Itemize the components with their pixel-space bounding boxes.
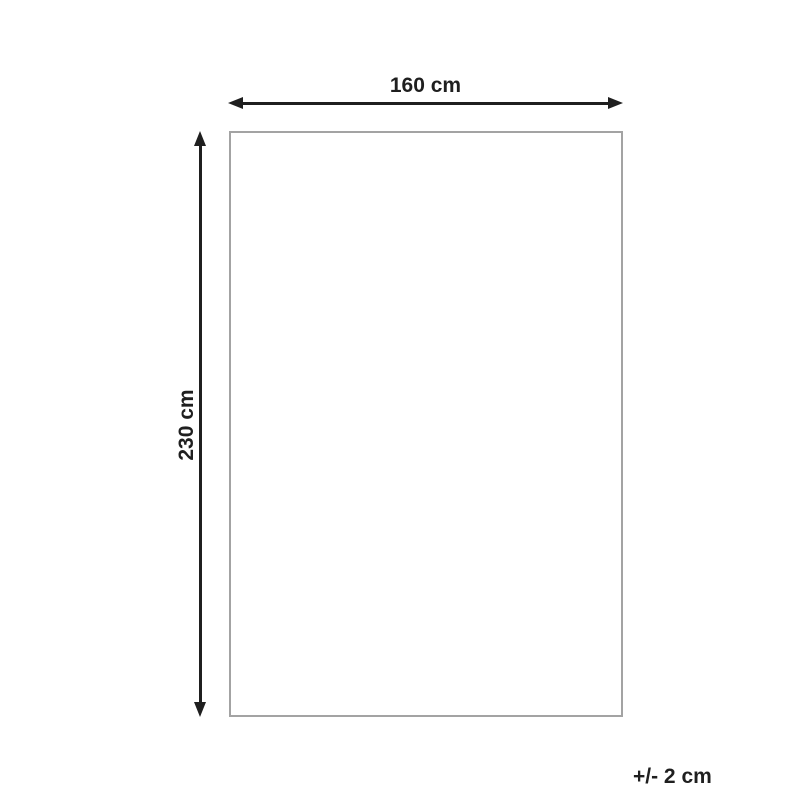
arrowhead-left-icon [228, 97, 243, 109]
product-outline-rectangle [229, 131, 623, 717]
height-dimension-label: 230 cm [175, 389, 199, 460]
width-dimension-line [238, 102, 613, 105]
arrowhead-down-icon [194, 702, 206, 717]
arrowhead-right-icon [608, 97, 623, 109]
tolerance-label: +/- 2 cm [633, 765, 712, 789]
height-dimension-line [199, 141, 202, 707]
width-dimension-label: 160 cm [228, 74, 623, 98]
arrowhead-up-icon [194, 131, 206, 146]
dimension-diagram: 160 cm 230 cm +/- 2 cm [0, 0, 800, 800]
